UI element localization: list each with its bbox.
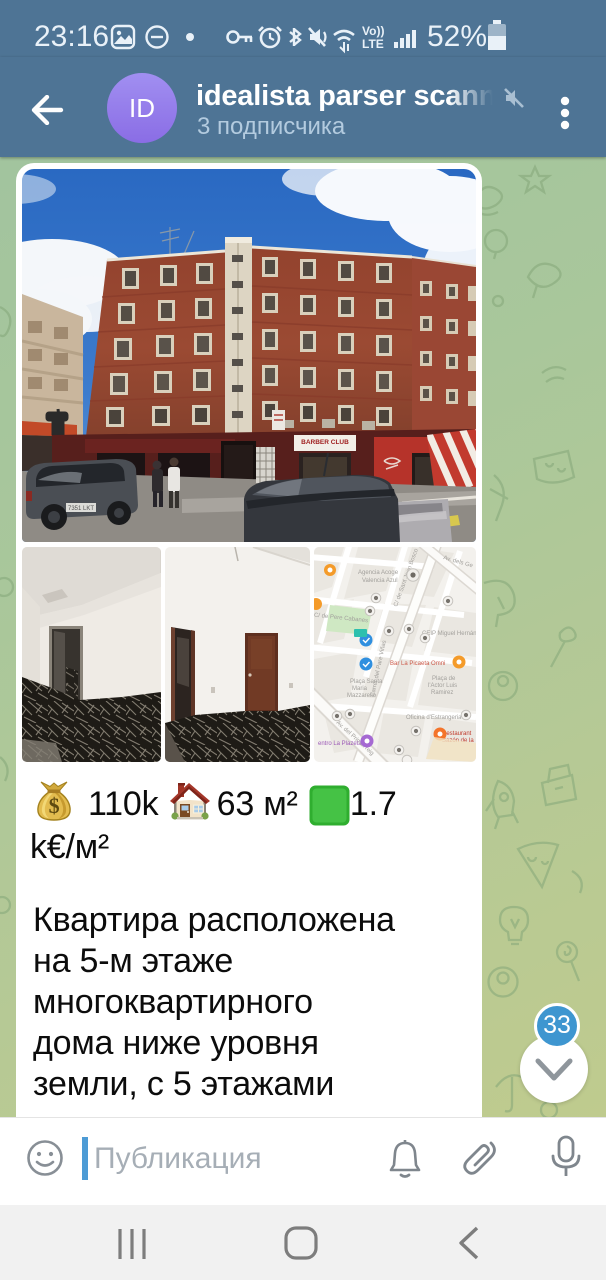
svg-text:$: $ (49, 793, 60, 818)
svg-text:BARBER CLUB: BARBER CLUB (301, 439, 349, 446)
svg-text:Agencia Acoge: Agencia Acoge (358, 570, 399, 576)
svg-text:Plaça de: Plaça de (432, 676, 456, 682)
svg-text:Ramirez: Ramirez (431, 690, 453, 696)
svg-text:Maria: Maria (352, 686, 368, 692)
svg-text:Vo)): Vo)) (362, 24, 384, 38)
svg-text:CEIP Miguel Hernán: CEIP Miguel Hernán (422, 631, 476, 637)
svg-text:l'Actor Luis: l'Actor Luis (428, 683, 457, 689)
svg-text:Oficina d'Estrangeria: Oficina d'Estrangeria (406, 715, 462, 721)
svg-text:Bar La Picaeta Omni: Bar La Picaeta Omni (390, 661, 445, 667)
svg-text:Valencia Azul: Valencia Azul (362, 578, 398, 584)
svg-text:LTE: LTE (362, 37, 384, 51)
svg-text:7351 LKT: 7351 LKT (68, 506, 94, 512)
